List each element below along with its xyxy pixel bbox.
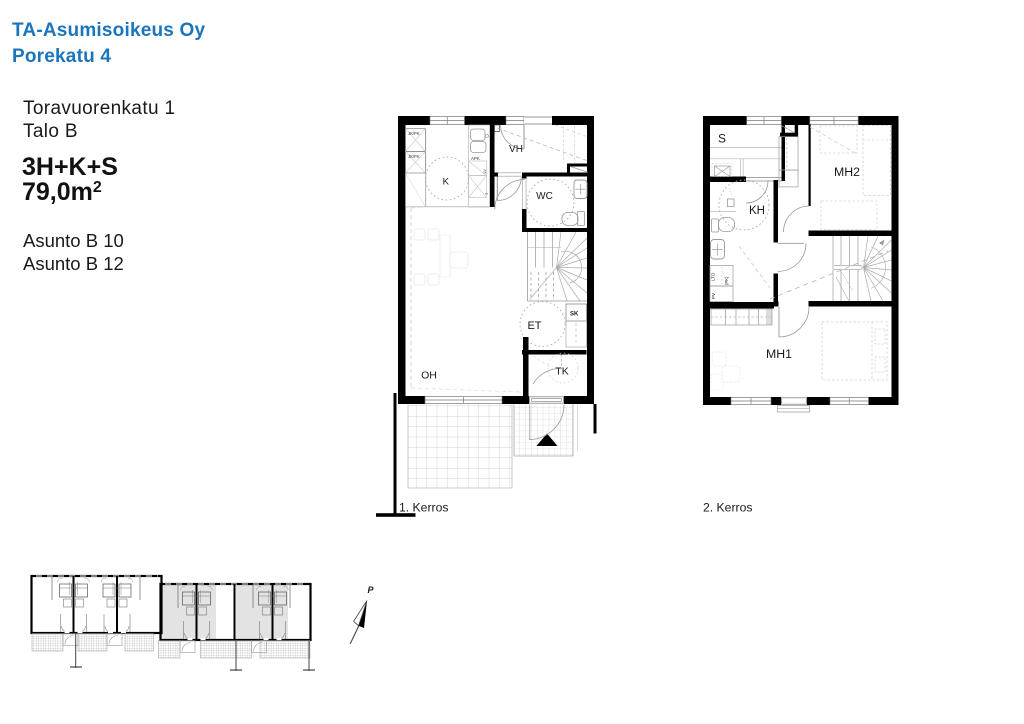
svg-text:APK: APK (471, 156, 480, 161)
svg-text:MH1: MH1 (766, 347, 792, 361)
svg-text:VH: VH (509, 144, 523, 155)
svg-text:OH: OH (421, 370, 437, 382)
svg-text:JK/PK: JK/PK (408, 154, 420, 159)
svg-text:LV: LV (482, 169, 487, 174)
svg-text:TK: TK (555, 366, 568, 378)
svg-text:S: S (718, 132, 726, 146)
svg-text:JK/PK: JK/PK (408, 131, 420, 136)
svg-text:PV: PV (711, 293, 716, 299)
svg-text:ET: ET (527, 320, 541, 332)
svg-text:1: 1 (484, 192, 489, 195)
svg-text:K: K (443, 177, 450, 188)
svg-text:LTO: LTO (711, 272, 716, 281)
svg-text:P: P (368, 585, 375, 595)
svg-text:WC: WC (536, 191, 553, 202)
svg-text:KH: KH (749, 205, 765, 217)
svg-text:SK: SK (570, 312, 579, 318)
svg-text:MH2: MH2 (834, 165, 860, 179)
svg-text:2. Kerros: 2. Kerros (703, 501, 752, 515)
svg-text:(PK): (PK) (724, 276, 729, 285)
svg-text:1. Kerros: 1. Kerros (399, 501, 448, 515)
